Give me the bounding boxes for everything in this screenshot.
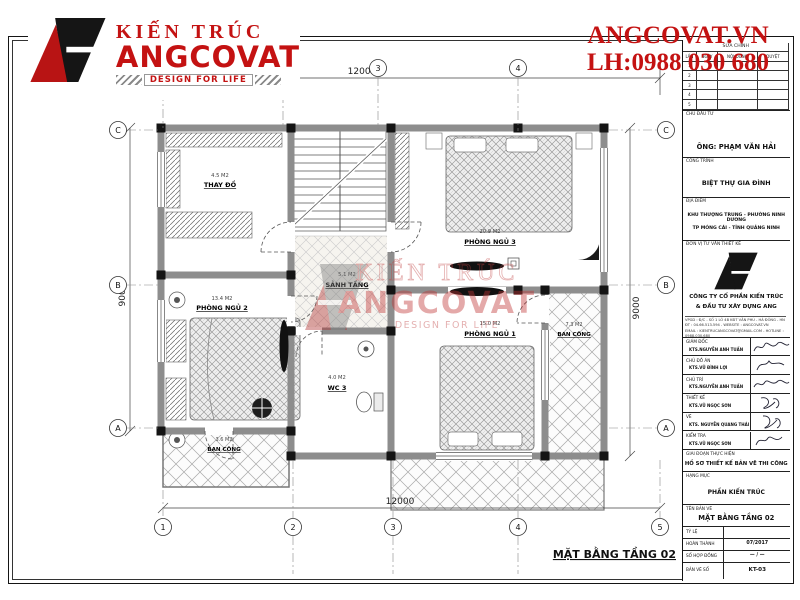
category-label: HẠNG MỤC <box>686 474 710 479</box>
signature-name: KTS.VŨ NGỌC SƠN <box>689 441 731 446</box>
room-name: PHÒNG NGỦ 2 <box>196 302 248 312</box>
revision-row-num: 5 <box>683 100 697 110</box>
room-name: WC 3 <box>328 384 347 392</box>
plan-title: MẶT BẰNG TẦNG 02 <box>553 546 676 561</box>
investor-section: CHỦ ĐẦU TƯ ÔNG: PHẠM VĂN HẢI <box>683 111 790 158</box>
signature-row: CHỦ ĐỒ ÁN KTS.VŨ ĐÌNH LỢI <box>683 356 790 375</box>
company-address: VPGD : Đ/C - SỐ 1 LÔ 4B KĐT VĂN PHÚ - HÀ… <box>685 316 786 340</box>
investor-name: ÔNG: PHẠM VĂN HẢI <box>683 143 790 151</box>
signature-name: KTS.NGUYỄN ANH TUẤN <box>689 384 743 389</box>
signature-role: CHỦ TRÌ <box>686 377 703 382</box>
info-label: SỐ HỢP ĐỒNG <box>686 553 717 558</box>
signature-name: KTS.VŨ NGỌC SƠN <box>689 403 731 408</box>
info-row: TỶ LỆ <box>683 527 790 539</box>
logo-text: KIẾN TRÚC ANGCOVAT DESIGN FOR LIFE <box>116 8 300 100</box>
signature-scribble <box>750 375 790 393</box>
signature-row: GIÁM ĐỐC KTS.NGUYỄN ANH TUẤN <box>683 338 790 357</box>
logo-angcovat: ANGCOVAT <box>116 42 300 72</box>
category-section: HẠNG MỤC PHẦN KIẾN TRÚC <box>683 472 790 505</box>
signature-row: THIẾT KẾ KTS.VŨ NGỌC SƠN <box>683 394 790 413</box>
info-row: SỐ HỢP ĐỒNG — / — <box>683 551 790 563</box>
revision-row-num: 3 <box>683 81 697 91</box>
phase-section: GIAI ĐOẠN THỰC HIỆN HỒ SƠ THIẾT KẾ BẢN V… <box>683 450 790 472</box>
room-name: THAY ĐỒ <box>204 179 237 189</box>
blueprint-sheet: { "brand": { "logo_top": "KIẾN TRÚC", "l… <box>0 0 800 600</box>
watermark: KIẾN TRÚC ANGCOVAT DESIGN FOR LIFE <box>305 259 536 331</box>
dim-right: 9000 <box>632 296 642 319</box>
logo-triangle-icon <box>28 8 108 92</box>
revision-row-num: 4 <box>683 90 697 100</box>
phase-label: GIAI ĐOẠN THỰC HIỆN <box>686 452 735 457</box>
investor-label: CHỦ ĐẦU TƯ <box>686 112 714 117</box>
watermark-line1: KIẾN TRÚC <box>356 259 519 286</box>
info-value: — / — <box>725 553 790 558</box>
info-value: 07/2017 <box>725 541 790 546</box>
grid-bubble-label: C <box>663 126 669 135</box>
revision-row-num: 2 <box>683 71 697 81</box>
signature-role: VẼ <box>686 414 692 419</box>
info-label: BẢN VẼ SỐ <box>686 567 709 572</box>
revision-table: SỬA CHÍNH LẦN NGÀY NỘI DUNG DUYỆT 1 2 3 … <box>683 43 790 111</box>
consultant-label: ĐƠN VỊ TƯ VẤN THIẾT KẾ <box>686 242 741 247</box>
signature-role: THIẾT KẾ <box>686 395 705 400</box>
project-name: BIỆT THỰ GIA ĐÌNH <box>683 179 790 187</box>
company-logo: KIẾN TRÚC ANGCOVAT DESIGN FOR LIFE <box>28 8 300 100</box>
drawing-name-label: TÊN BẢN VẼ <box>686 507 712 512</box>
watermark-line2: ANGCOVAT <box>338 286 536 321</box>
signature-scribble <box>750 338 790 356</box>
room-name: BAN CÔNG <box>207 446 241 453</box>
info-row: BẢN VẼ SỐ KT-03 <box>683 563 790 579</box>
grid-bubble-label: A <box>115 424 121 433</box>
drawing-name-section: TÊN BẢN VẼ MẶT BẰNG TẦNG 02 <box>683 505 790 527</box>
signature-row: KIỂM TRA KTS.VŨ NGỌC SƠN <box>683 432 790 451</box>
logo-tagline-row: DESIGN FOR LIFE <box>116 74 300 86</box>
grid-bubble-label: 3 <box>375 64 380 73</box>
signature-scribble <box>750 394 790 412</box>
phase-value: HỒ SƠ THIẾT KẾ BẢN VẼ THI CÔNG <box>683 461 790 467</box>
grid-bubble-label: C <box>115 126 121 135</box>
info-row: HOÀN THÀNH 07/2017 <box>683 539 790 551</box>
signature-role: CHỦ ĐỒ ÁN <box>686 358 710 363</box>
room-name: BAN CÔNG <box>557 331 591 338</box>
category-value: PHẦN KIẾN TRÚC <box>683 489 790 496</box>
wc-fixtures <box>357 341 384 412</box>
revision-row-num: 1 <box>683 62 697 72</box>
signature-scribble <box>750 356 790 374</box>
location-line1: KHU THƯỢNG TRUNG - PHƯỜNG NINH DƯƠNG <box>683 213 790 223</box>
revision-col: LẦN <box>683 52 697 62</box>
grid-bubble-label: B <box>115 281 121 290</box>
grid-bubble-label: 5 <box>657 523 662 532</box>
grid-bubble-label: 2 <box>290 523 295 532</box>
revision-title: SỬA CHÍNH <box>683 43 789 53</box>
logo-kientruc: KIẾN TRÚC <box>116 22 300 42</box>
room-area: 3.6 M2 <box>215 437 232 443</box>
grid-bubble-label: 4 <box>515 64 520 73</box>
grid-bubble-label: B <box>663 281 669 290</box>
consultant-section: ĐƠN VỊ TƯ VẤN THIẾT KẾ CÔNG TY CỔ PHẦN K… <box>683 241 790 338</box>
grid-bubble-label: A <box>663 424 669 433</box>
hatch-decoration <box>255 75 281 85</box>
staircase <box>294 131 386 231</box>
grid-bubble-label: 4 <box>515 523 520 532</box>
revision-col: NGÀY <box>697 52 718 62</box>
location-section: ĐỊA ĐIỂM KHU THƯỢNG TRUNG - PHƯỜNG NINH … <box>683 198 790 241</box>
info-value: KT-03 <box>725 567 790 573</box>
room-area: 4.5 M2 <box>211 173 229 179</box>
info-label: TỶ LỆ <box>686 529 697 534</box>
consultant-logo-icon <box>713 250 759 292</box>
project-label: CÔNG TRÌNH <box>686 159 714 164</box>
logo-tagline: DESIGN FOR LIFE <box>144 74 253 86</box>
signature-row: CHỦ TRÌ KTS.NGUYỄN ANH TUẤN <box>683 375 790 394</box>
watermark-line3: DESIGN FOR LIFE <box>395 320 499 331</box>
floor-plan-drawing: 12000 12000 9000 9000 2 3 4 1 2 3 4 5 C … <box>12 40 680 577</box>
company-line2: & ĐẦU TƯ XÂY DỰNG ANG <box>683 304 790 310</box>
company-line1: CÔNG TY CỔ PHẦN KIẾN TRÚC <box>683 294 790 300</box>
grid-bubble-label: 3 <box>390 523 395 532</box>
title-block: SỬA CHÍNH LẦN NGÀY NỘI DUNG DUYỆT 1 2 3 … <box>682 40 790 581</box>
revision-col: DUYỆT <box>758 52 790 62</box>
location-line2: TP MÓNG CÁI - TỈNH QUẢNG NINH <box>683 226 790 231</box>
revision-col: NỘI DUNG <box>718 52 757 62</box>
signature-role: KIỂM TRA <box>686 433 706 438</box>
room-area: 7.3 M2 <box>565 322 582 328</box>
room-name: PHÒNG NGỦ 3 <box>464 236 516 246</box>
signature-role: GIÁM ĐỐC <box>686 339 708 344</box>
location-label: ĐỊA ĐIỂM <box>686 199 706 204</box>
signature-name: KTS.NGUYỄN ANH TUẤN <box>689 347 743 352</box>
room-area: 13.4 M2 <box>212 296 233 302</box>
dim-bottom: 12000 <box>386 497 415 507</box>
drawing-name-value: MẶT BẰNG TẦNG 02 <box>683 514 790 522</box>
signature-name: KTS.VŨ ĐÌNH LỢI <box>689 365 727 370</box>
signature-scribble <box>750 413 790 431</box>
signature-name: KTS. NGUYỄN QUANG THÁI <box>689 422 749 427</box>
room-area: 20.9 M2 <box>480 229 501 235</box>
info-label: HOÀN THÀNH <box>686 541 715 546</box>
signature-scribble <box>750 432 790 450</box>
project-section: CÔNG TRÌNH BIỆT THỰ GIA ĐÌNH <box>683 158 790 198</box>
hatch-decoration <box>116 75 142 85</box>
signature-row: VẼ KTS. NGUYỄN QUANG THÁI <box>683 413 790 432</box>
room-area: 4.0 M2 <box>328 375 346 381</box>
grid-bubble-label: 1 <box>160 523 165 532</box>
